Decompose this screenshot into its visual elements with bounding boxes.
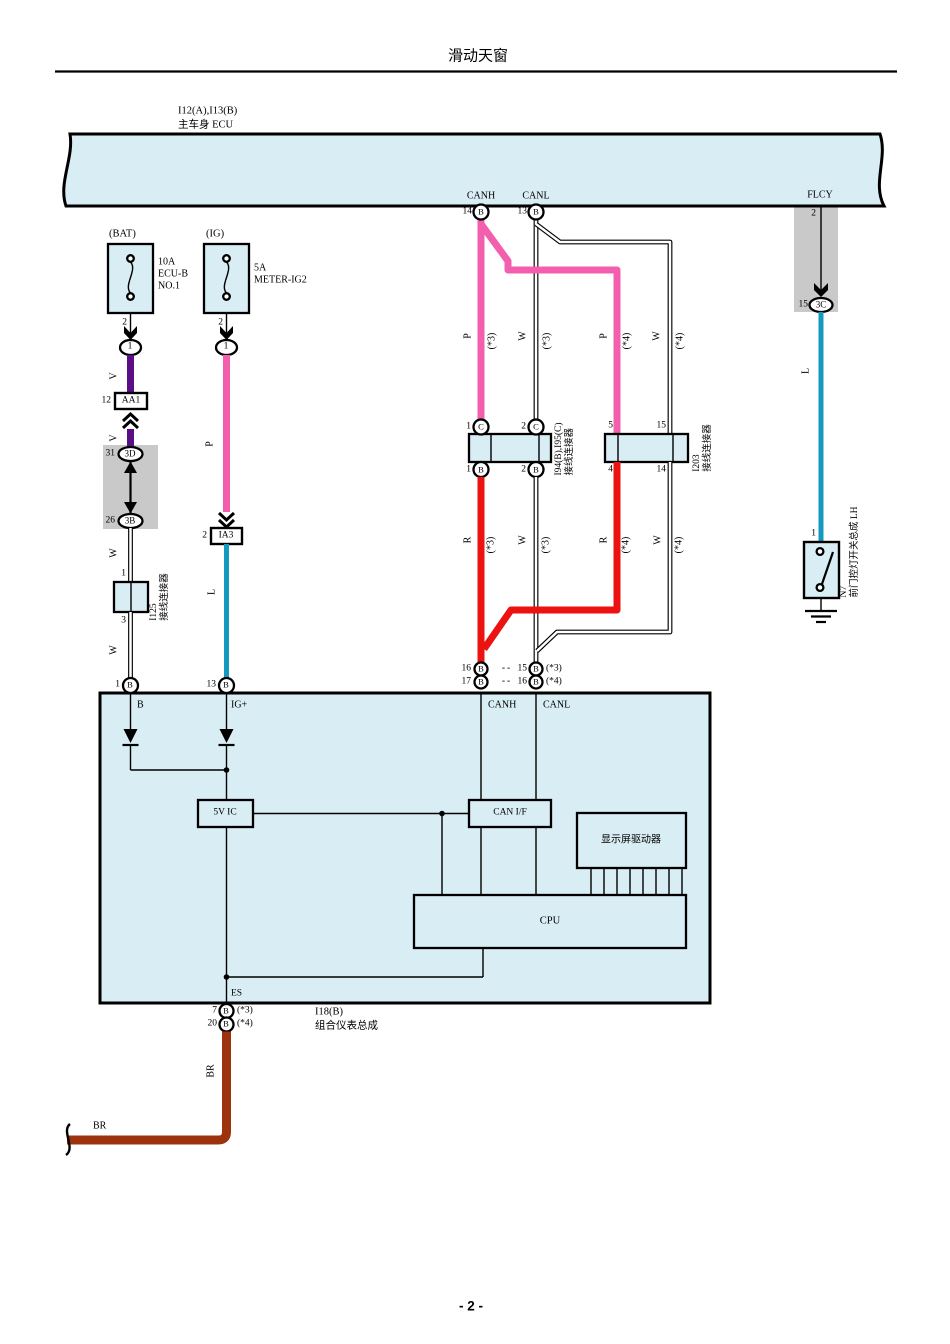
pin-number: 16 [462, 664, 472, 675]
ecu-term-canh: CANH [467, 191, 495, 202]
wire-color-label: V [109, 372, 120, 379]
door-switch-label: N7前门控灯开关总成 LH [839, 506, 861, 597]
ecu-term-canl: CANL [522, 191, 549, 202]
pin-code: B [223, 1019, 229, 1030]
wire-variant-label: (*3) [487, 333, 498, 350]
diagram-shapes [0, 0, 950, 1344]
pin-code: B [478, 677, 484, 688]
wire-color-label: P [463, 333, 474, 339]
ecu-ref: I12(A),I13(B) [178, 106, 237, 117]
pin-code: B [533, 677, 539, 688]
pin-number: 15 [657, 421, 667, 432]
connector-code: 1 [224, 342, 229, 353]
meter-name: 组合仪表总成 [315, 1021, 378, 1032]
connector-code: 1 [128, 342, 133, 353]
pin-number: 13 [207, 680, 217, 691]
wire-color-label: L [801, 368, 812, 374]
ecu-term-flcy: FLCY [807, 190, 833, 201]
meter-term-canl: CANL [543, 700, 570, 711]
pin-number: 15 [518, 664, 528, 675]
wire-color-label: P [599, 333, 610, 339]
pin-number: 15 [799, 300, 809, 311]
pin-number: 1 [115, 680, 120, 691]
pin-number: 20 [208, 1019, 218, 1030]
pin-number: 14 [657, 465, 667, 476]
pin-code: B [223, 1006, 229, 1017]
pin-number: 4 [608, 465, 613, 476]
wire-color-label: R [599, 537, 610, 544]
fuse-name: METER-IG2 [254, 275, 307, 286]
connector-code: 3B [125, 516, 136, 527]
pin-code: B [533, 207, 539, 218]
meter-term-es: ES [231, 989, 242, 1000]
wire-color-label: W [652, 331, 663, 340]
fuse-name: ECU-B [158, 269, 188, 280]
wire-color-label: L [207, 589, 218, 595]
wire-variant-label: (*4) [546, 677, 562, 688]
regulator-label: 5V IC [213, 808, 236, 819]
wire-variant-label: (*4) [674, 537, 685, 554]
can-upper-wires [481, 218, 670, 434]
pin-number: 7 [212, 1006, 217, 1017]
pin-number: 3 [121, 616, 126, 627]
pin-code: B [223, 680, 229, 691]
wire-variant-label: (*4) [675, 333, 686, 350]
wire-variant-label: (*4) [622, 333, 633, 350]
fuse-bus-label: (BAT) [109, 229, 136, 240]
wiring-diagram-page: 滑动天窗 - 2 - I12(A),I13(B) 主车身 ECU CANH CA… [0, 0, 950, 1344]
pin-number: 2 [521, 465, 526, 476]
wire-color-label: BR [93, 1121, 106, 1132]
connector-code: IA3 [219, 531, 234, 542]
wire-color-label: W [653, 535, 664, 544]
page-title: 滑动天窗 [448, 52, 508, 63]
pin-code: B [533, 465, 539, 476]
connector-code: 3C [816, 300, 827, 311]
pin-number: 14 [463, 207, 473, 218]
junction-connector-2 [605, 434, 688, 462]
pin-number: 13 [518, 207, 528, 218]
meter-ref: I18(B) [315, 1007, 343, 1018]
junction-label: I125接线连接器 [149, 573, 171, 621]
wire-variant-label: (*3) [237, 1006, 253, 1017]
meter-term-canh: CANH [488, 700, 516, 711]
pin-code: B [478, 465, 484, 476]
pin-number: 1 [466, 422, 471, 433]
wire-color-label: P [205, 441, 216, 447]
fuse-bus-label: (IG) [206, 229, 224, 240]
pin-code: C [478, 422, 484, 433]
wire-color-label: R [463, 537, 474, 544]
pin-number: 26 [106, 516, 116, 527]
pin-code: C [533, 422, 539, 433]
ig-fuse-branch [204, 244, 249, 678]
pin-number: 31 [106, 449, 116, 460]
fuse-rating: 10A [158, 257, 175, 268]
junction-label: I94(B),I95(C)接线连接器 [554, 422, 576, 475]
display-driver-label: 显示屏驱动器 [601, 835, 661, 846]
pin-number: 2 [218, 318, 223, 329]
pin-code: B [478, 664, 484, 675]
wire-color-label: W [518, 331, 529, 340]
meter-term-b: B [137, 700, 144, 711]
fuse-name: NO.1 [158, 281, 180, 292]
pin-number: 12 [102, 396, 112, 407]
pin-alt-dash: -- [502, 677, 512, 688]
pin-number: 1 [121, 569, 126, 580]
connector-code: AA1 [122, 396, 140, 407]
shade-flcy [794, 206, 838, 312]
wire-variant-label: (*3) [546, 664, 562, 675]
pin-number: 17 [462, 677, 472, 688]
pin-number: 2 [202, 531, 207, 542]
pin-number: 1 [466, 465, 471, 476]
pin-code: B [127, 680, 133, 691]
pin-number: 16 [518, 677, 528, 688]
wire-variant-label: (*3) [542, 333, 553, 350]
wire-color-label: V [109, 434, 120, 441]
fuse-rating: 5A [254, 263, 266, 274]
wire-color-label: BR [206, 1064, 217, 1077]
connector-code: 3D [125, 449, 136, 460]
can-if-label: CAN I/F [493, 808, 527, 819]
wire-variant-label: (*4) [237, 1019, 253, 1030]
junction-label: I203接线连接器 [692, 424, 714, 472]
wire-variant-label: (*3) [541, 537, 552, 554]
wire-color-label: W [518, 535, 529, 544]
pin-number: 2 [521, 422, 526, 433]
pin-number: 5 [608, 421, 613, 432]
cpu-label: CPU [540, 916, 560, 927]
pin-code: B [533, 664, 539, 675]
page-number: - 2 - [459, 1301, 483, 1312]
can-lower-wires [481, 462, 670, 663]
pin-number: 1 [811, 529, 816, 540]
pin-number: 2 [122, 318, 127, 329]
wire-variant-label: (*3) [486, 537, 497, 554]
wire-color-label: W [109, 548, 120, 557]
wire-variant-label: (*4) [621, 537, 632, 554]
pin-alt-dash: -- [502, 664, 512, 675]
ecu-name: 主车身 ECU [178, 120, 233, 131]
wire-color-label: W [109, 645, 120, 654]
pin-number: 2 [811, 209, 816, 220]
meter-term-ig: IG+ [231, 700, 247, 711]
pin-code: B [478, 207, 484, 218]
